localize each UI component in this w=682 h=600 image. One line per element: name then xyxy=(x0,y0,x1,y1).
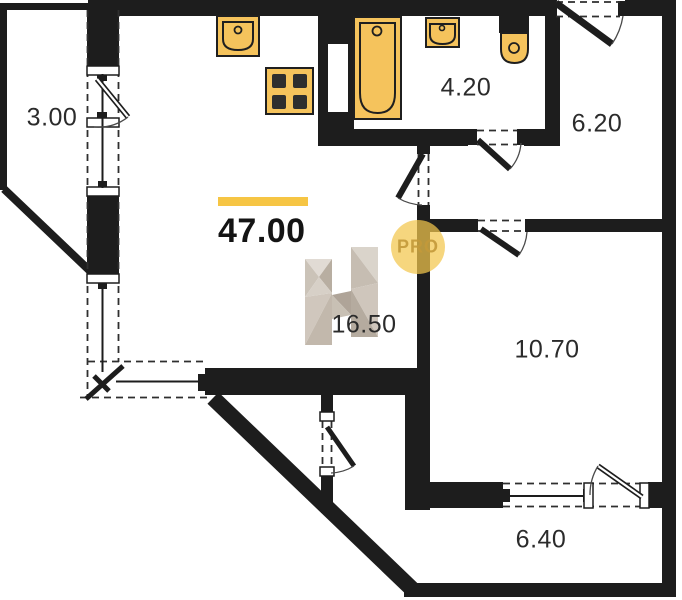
accent-bar xyxy=(218,197,308,206)
total-area-value: 47.00 xyxy=(218,212,338,251)
wall-living-bottom xyxy=(205,368,430,395)
wall-bath-bottom-l xyxy=(318,129,468,146)
sill xyxy=(320,412,334,421)
wall-bedroom-bottom-r xyxy=(648,482,676,508)
sill xyxy=(87,274,119,283)
pro-watermark-label: PRO xyxy=(397,237,439,258)
room-area-bedroom: 10.70 xyxy=(514,336,579,365)
bath-door-jamb-r xyxy=(517,129,526,145)
wall-bottom xyxy=(404,583,676,597)
total-area-block: 47.00 xyxy=(218,197,338,251)
sill xyxy=(584,483,593,508)
toilet-tank xyxy=(499,13,529,33)
toilet-fixture xyxy=(501,33,528,63)
floor-plan-drawing xyxy=(0,0,682,600)
kitchen-sink-fixture xyxy=(217,16,259,56)
wall-bedroom-bottom-l xyxy=(405,482,503,508)
room-area-bathroom: 4.20 xyxy=(441,74,492,103)
sill xyxy=(320,467,334,476)
entrance-jamb xyxy=(618,1,627,16)
wall-bath-bottom-r xyxy=(524,129,560,146)
fixtures xyxy=(217,16,528,119)
balcony-parapet-top xyxy=(0,3,90,10)
bath-door-jamb-l xyxy=(468,129,477,145)
stove-fixture xyxy=(266,68,313,114)
floor-plan-canvas: 3.00 4.20 6.20 16.50 10.70 6.40 47.00 PR… xyxy=(0,0,682,600)
balcony-parapet-left xyxy=(0,3,7,190)
door-balcony-bottom xyxy=(590,466,642,497)
door-entrance xyxy=(556,3,623,44)
shaft-niche xyxy=(328,44,348,112)
wall-bath-right xyxy=(545,16,560,146)
door-bedroom xyxy=(481,229,527,255)
room-area-hallway: 6.20 xyxy=(572,110,623,139)
sill xyxy=(87,187,119,196)
room-area-balcony-top: 3.00 xyxy=(27,104,78,133)
room-area-balcony-bottom: 6.40 xyxy=(516,526,567,555)
wall-diagonal xyxy=(213,398,412,589)
washbasin-fixture xyxy=(426,18,459,47)
bathtub-fixture xyxy=(354,17,401,119)
glazing-pier-top xyxy=(87,10,119,66)
wall-living-hall-top xyxy=(417,146,430,154)
glazing-pier-mid xyxy=(87,194,119,276)
balcony-parapet-diagonal xyxy=(4,189,90,271)
room-area-living-room: 16.50 xyxy=(331,311,396,340)
wall-bedroom-top-r xyxy=(525,219,676,232)
sill xyxy=(87,66,119,75)
